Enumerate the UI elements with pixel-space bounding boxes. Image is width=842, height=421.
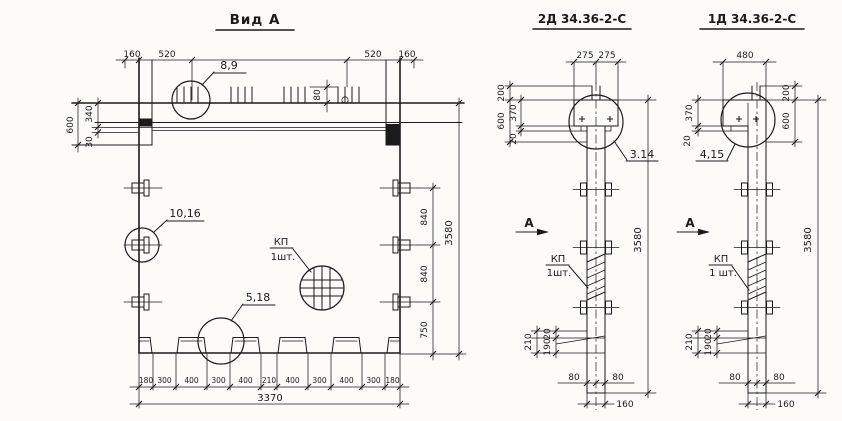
bolt-left-3 bbox=[124, 294, 162, 310]
dim-840-a: 840 bbox=[420, 208, 430, 225]
kp-qty: 1шт. bbox=[271, 252, 296, 263]
dim-275-l: 275 bbox=[576, 51, 593, 61]
section-arrow-letter: А bbox=[524, 216, 534, 230]
dim-160: 160 bbox=[777, 400, 794, 410]
dim-600: 600 bbox=[66, 116, 76, 133]
dim-bottom-2: 400 bbox=[184, 376, 199, 385]
dim-190: 190 bbox=[704, 338, 714, 355]
dim-bottom-10: 180 bbox=[385, 376, 400, 385]
callout-5-18: 5,18 bbox=[246, 291, 271, 304]
rib-feet bbox=[139, 338, 400, 354]
dim-80: 80 bbox=[313, 89, 323, 101]
dim-bottom-9: 300 bbox=[366, 376, 381, 385]
kp-qty: 1 шт. bbox=[709, 268, 737, 279]
dim-160: 160 bbox=[616, 400, 633, 410]
dim-80-l: 80 bbox=[729, 373, 741, 383]
dim-600: 600 bbox=[497, 112, 507, 129]
callout-10-16: 10,16 bbox=[169, 207, 201, 220]
dim-3580: 3580 bbox=[633, 227, 644, 252]
dim-340: 340 bbox=[85, 105, 95, 122]
dim-3580: 3580 bbox=[803, 227, 814, 252]
dim-275-r: 275 bbox=[598, 51, 615, 61]
dim-370: 370 bbox=[685, 104, 695, 121]
dim-bottom-1: 300 bbox=[157, 376, 172, 385]
beam-seat-left bbox=[139, 119, 152, 127]
bolt-right-1 bbox=[380, 180, 418, 196]
dimensions: 275 275 200 600 370 20 3580 210 20 190 bbox=[497, 51, 656, 410]
kp-label: КП bbox=[274, 237, 289, 248]
dim-80-r: 80 bbox=[773, 373, 785, 383]
dim-160-right: 160 bbox=[398, 50, 415, 60]
kp-label: КП bbox=[714, 254, 729, 265]
dim-480: 480 bbox=[736, 51, 753, 61]
panel-outline bbox=[72, 58, 464, 353]
dim-3580: 3580 bbox=[444, 220, 455, 245]
dim-bottom-0: 180 bbox=[139, 376, 154, 385]
dim-bottom-4: 400 bbox=[238, 376, 253, 385]
callout-8-9: 8,9 bbox=[220, 59, 238, 72]
technical-drawing: Вид А bbox=[0, 0, 842, 421]
dim-20: 20 bbox=[509, 133, 519, 145]
dim-520-left: 520 bbox=[158, 50, 175, 60]
section-arrow bbox=[537, 229, 549, 236]
callouts: 8,9 10,16 5,18 КП 1шт. bbox=[125, 59, 344, 364]
section-arrow bbox=[698, 229, 710, 236]
bolt-right-3 bbox=[380, 294, 418, 310]
bolt-left-1 bbox=[124, 180, 162, 196]
column-head bbox=[723, 100, 766, 126]
dim-210: 210 bbox=[524, 333, 534, 350]
dim-bottom-6: 400 bbox=[285, 376, 300, 385]
callout-3-14: 3.14 bbox=[630, 148, 655, 161]
dim-210: 210 bbox=[685, 333, 695, 350]
dim-3370: 3370 bbox=[257, 393, 282, 404]
bolt-right-2 bbox=[380, 237, 418, 253]
section-arrow-letter: А bbox=[685, 216, 695, 230]
view-a-title: Вид А bbox=[230, 12, 281, 28]
bolt-left-2 bbox=[124, 237, 162, 253]
dim-200: 200 bbox=[497, 84, 507, 101]
dim-370: 370 bbox=[509, 104, 519, 121]
dim-750: 750 bbox=[420, 321, 430, 338]
section-1d-title: 1Д 34.36-2-С bbox=[708, 12, 796, 26]
dim-bottom-3: 300 bbox=[211, 376, 226, 385]
dim-80-r: 80 bbox=[612, 373, 624, 383]
section-2d: 2Д 34.36-2-С bbox=[497, 12, 658, 410]
dim-20: 20 bbox=[683, 135, 693, 147]
beam-seat-right bbox=[386, 124, 400, 145]
plus-marks bbox=[736, 116, 759, 122]
section-1d: 1Д 34.36-2-С 4, bbox=[677, 12, 826, 410]
callout-4-15: 4,15 bbox=[700, 148, 725, 161]
dim-20b: 20 bbox=[543, 328, 553, 340]
dim-840-b: 840 bbox=[420, 265, 430, 282]
dim-200: 200 bbox=[782, 84, 792, 101]
mesh-detail: КП 1шт. bbox=[270, 237, 344, 310]
dim-bottom-8: 400 bbox=[339, 376, 354, 385]
embed-lines bbox=[717, 336, 766, 353]
drawing-sheet: Вид А bbox=[0, 0, 842, 421]
dim-190: 190 bbox=[543, 338, 553, 355]
dim-20b: 20 bbox=[704, 328, 714, 340]
anchor-bolts bbox=[124, 180, 418, 310]
callouts: 4,15 А КП 1 шт. bbox=[677, 144, 749, 290]
dim-80-l: 80 bbox=[568, 373, 580, 383]
dim-30: 30 bbox=[85, 136, 95, 148]
kp-qty: 1шт. bbox=[547, 268, 572, 279]
kp-label: КП bbox=[551, 254, 566, 265]
dim-160-left: 160 bbox=[123, 50, 140, 60]
dim-bottom-7: 300 bbox=[312, 376, 327, 385]
dim-600: 600 bbox=[782, 112, 792, 129]
section-2d-title: 2Д 34.36-2-С bbox=[538, 12, 626, 26]
dim-520-right: 520 bbox=[364, 50, 381, 60]
dim-bottom-5: 210 bbox=[262, 376, 277, 385]
view-a: Вид А bbox=[66, 12, 466, 408]
rebar-dowels bbox=[177, 87, 359, 103]
embed-lines bbox=[556, 336, 605, 353]
